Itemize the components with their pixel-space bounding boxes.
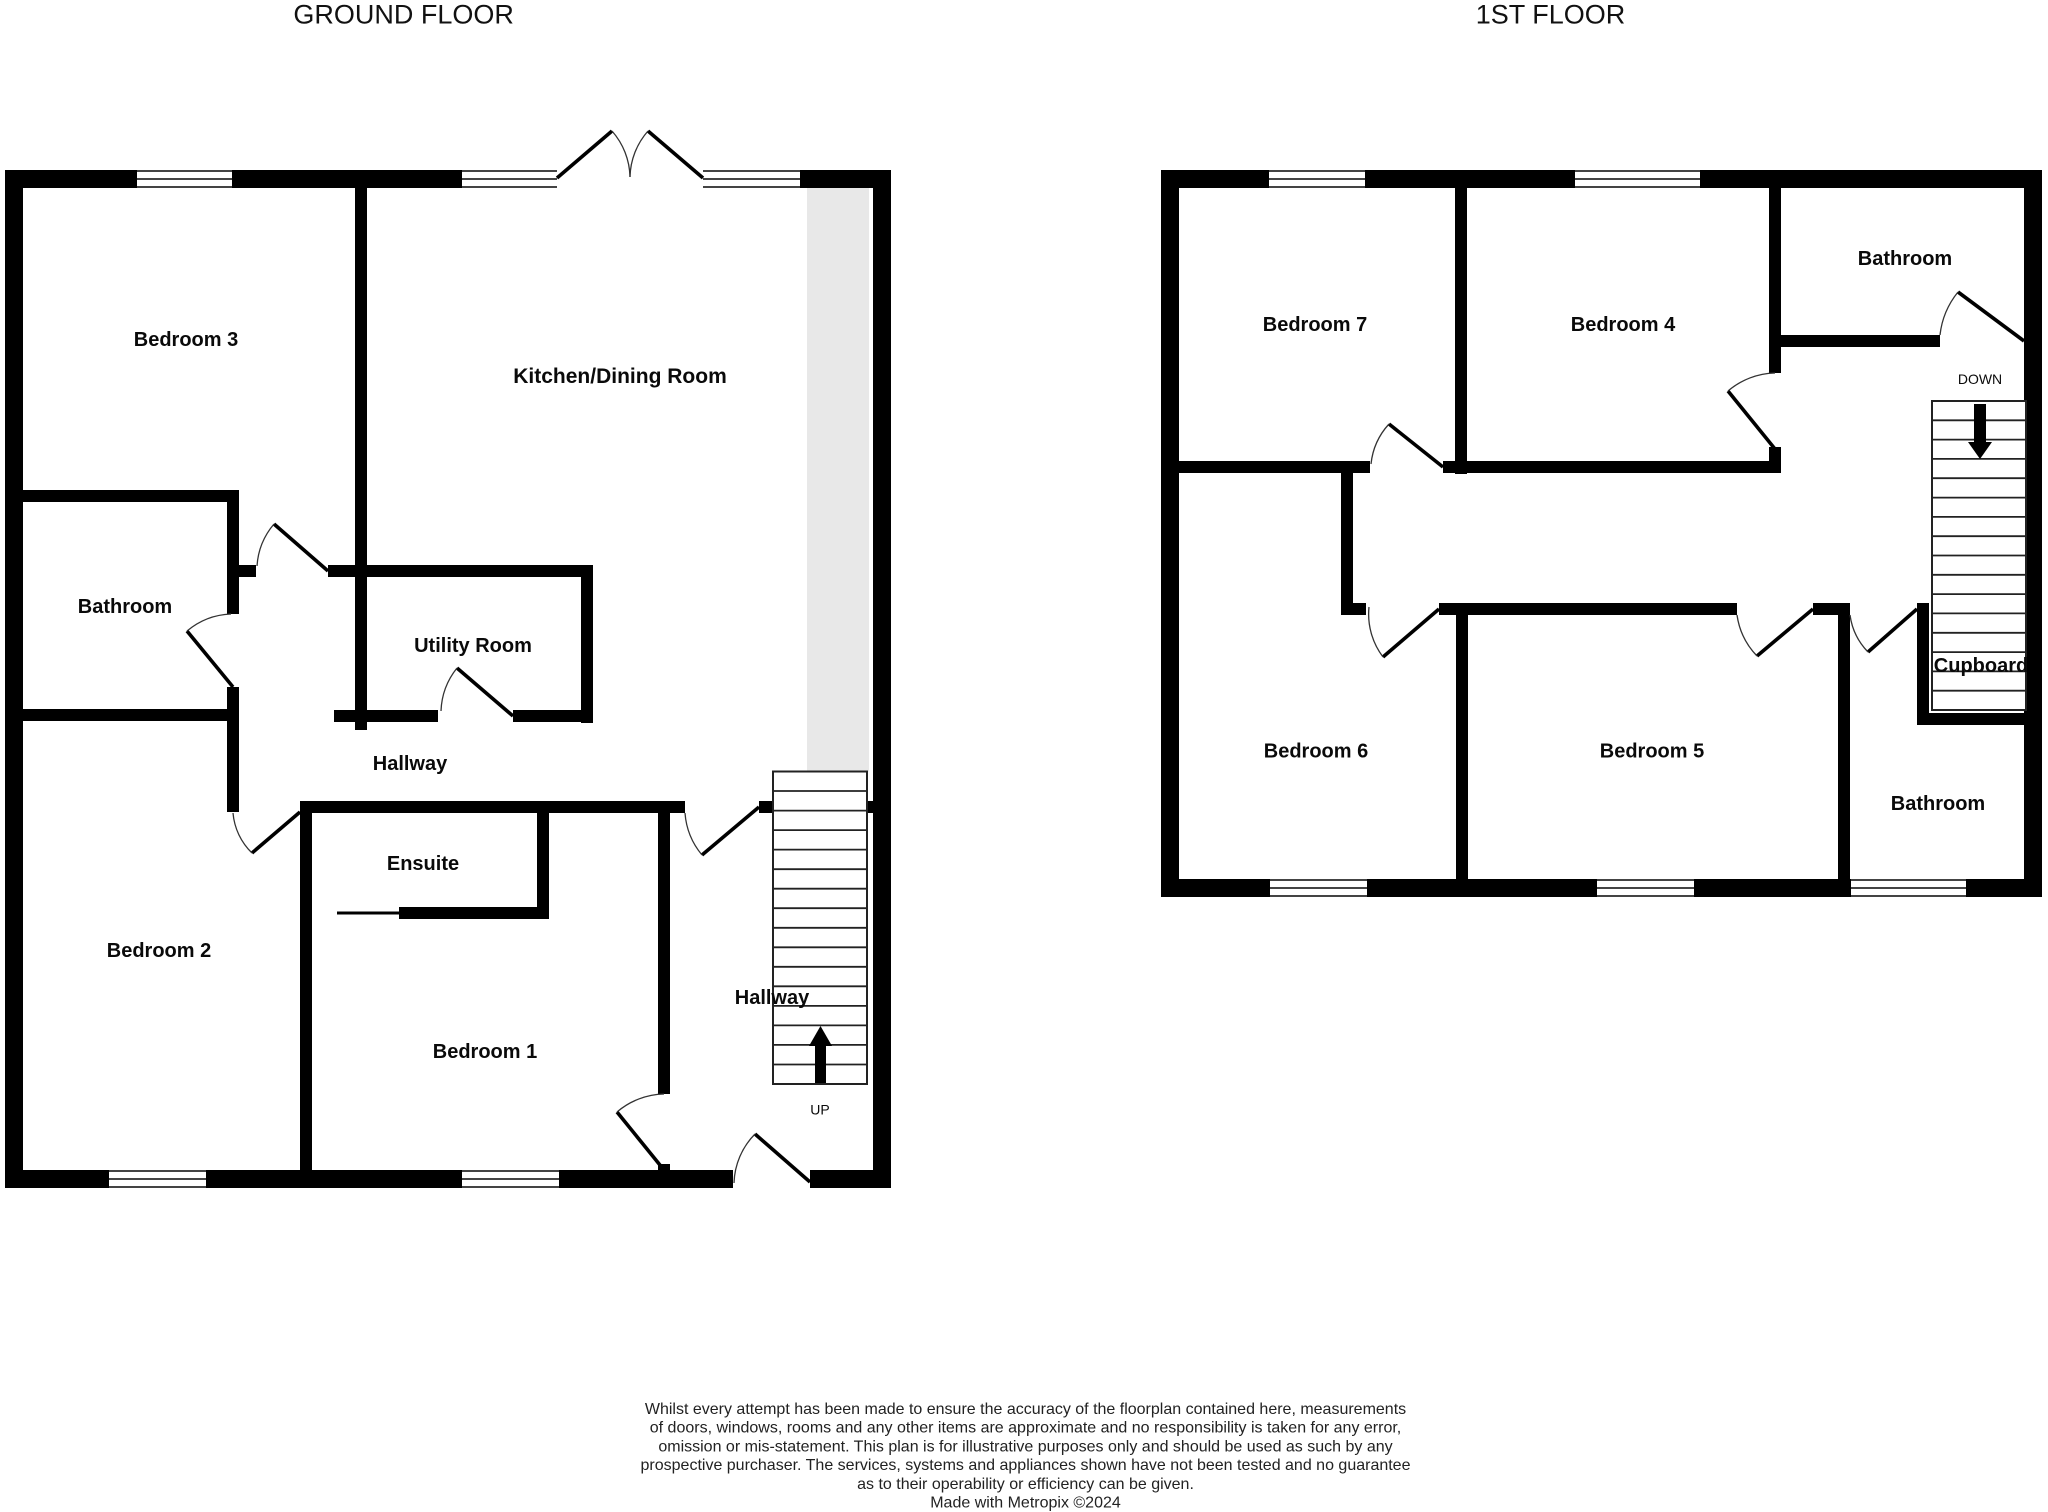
svg-text:DOWN: DOWN [1958,371,2002,387]
svg-text:of doors, windows, rooms and a: of doors, windows, rooms and any other i… [650,1420,1401,1437]
svg-text:GROUND FLOOR: GROUND FLOOR [293,0,514,30]
svg-text:Bedroom 6: Bedroom 6 [1264,741,1368,763]
svg-text:Whilst every attempt has been: Whilst every attempt has been made to en… [645,1401,1406,1418]
svg-text:Bathroom: Bathroom [1891,793,1985,815]
svg-text:Bedroom 4: Bedroom 4 [1571,314,1676,336]
svg-text:Bathroom: Bathroom [1858,248,1952,270]
svg-text:Hallway: Hallway [373,753,448,775]
svg-text:Cupboard: Cupboard [1934,655,2028,677]
svg-text:Hallway: Hallway [735,987,810,1009]
svg-text:Bathroom: Bathroom [78,596,172,618]
svg-text:omission or mis-statement. Thi: omission or mis-statement. This plan is … [658,1438,1392,1455]
svg-text:Kitchen/Dining Room: Kitchen/Dining Room [513,365,727,388]
svg-text:1ST FLOOR: 1ST FLOOR [1476,0,1626,30]
svg-text:UP: UP [810,1102,829,1118]
svg-text:prospective purchaser. The ser: prospective purchaser. The services, sys… [641,1457,1411,1474]
svg-text:Utility Room: Utility Room [414,635,532,657]
svg-text:Made with Metropix ©2024: Made with Metropix ©2024 [930,1495,1121,1512]
svg-text:Ensuite: Ensuite [387,853,459,875]
svg-text:Bedroom 7: Bedroom 7 [1263,314,1367,336]
svg-text:Bedroom 2: Bedroom 2 [107,940,211,962]
svg-text:Bedroom 5: Bedroom 5 [1600,741,1704,763]
svg-text:Bedroom 3: Bedroom 3 [134,329,238,351]
svg-text:Bedroom 1: Bedroom 1 [433,1041,537,1063]
svg-text:as to their operability or eff: as to their operability or efficiency ca… [857,1476,1194,1493]
